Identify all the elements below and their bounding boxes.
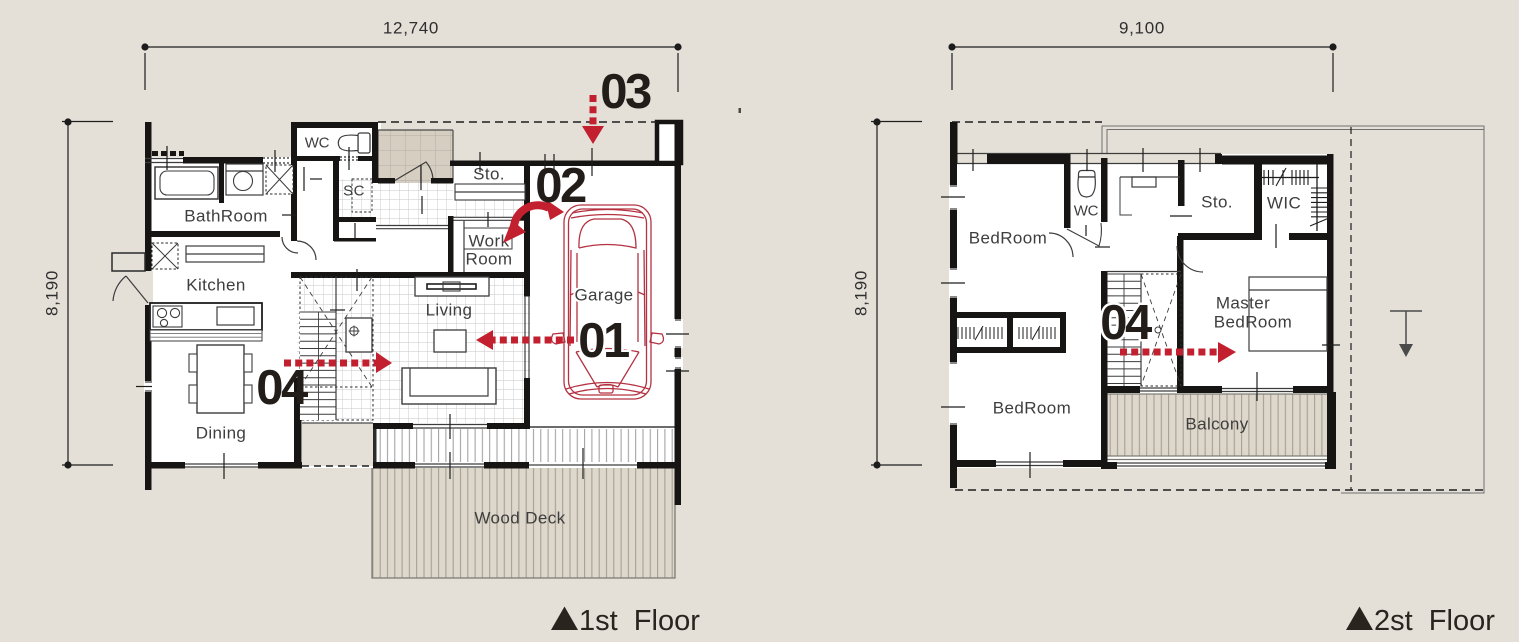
svg-text:Wood Deck: Wood Deck [474, 509, 565, 528]
svg-text:04: 04 [1100, 296, 1152, 350]
svg-text:01: 01 [578, 314, 629, 368]
svg-text:Living: Living [426, 301, 473, 320]
svg-text:Sto.: Sto. [1201, 193, 1233, 212]
svg-text:BedRoom: BedRoom [969, 229, 1047, 248]
svg-text:BedRoom: BedRoom [1214, 313, 1292, 332]
svg-text:Garage: Garage [574, 286, 633, 305]
svg-text:12,740: 12,740 [383, 19, 439, 38]
svg-text:02: 02 [535, 159, 586, 213]
svg-text:03: 03 [600, 65, 651, 119]
svg-text:2st Floor: 2st Floor [1374, 605, 1495, 637]
svg-text:Balcony: Balcony [1185, 415, 1248, 434]
svg-text:BathRoom: BathRoom [184, 207, 268, 226]
svg-text:Work: Work [469, 232, 510, 251]
svg-text:WC: WC [1074, 203, 1099, 220]
svg-text:Sto.: Sto. [473, 165, 505, 184]
svg-text:8,190: 8,190 [852, 270, 871, 316]
svg-text:04: 04 [256, 361, 308, 415]
svg-text:9,100: 9,100 [1119, 19, 1165, 38]
svg-text:SC: SC [343, 183, 365, 200]
svg-text:BedRoom: BedRoom [993, 399, 1071, 418]
svg-text:WC: WC [305, 135, 330, 152]
svg-text:8,190: 8,190 [43, 270, 62, 316]
svg-text:Master: Master [1216, 294, 1270, 313]
svg-text:Kitchen: Kitchen [186, 276, 246, 295]
svg-text:WIC: WIC [1267, 194, 1301, 213]
svg-text:Dining: Dining [196, 424, 247, 443]
svg-text:1st Floor: 1st Floor [579, 605, 700, 637]
svg-text:Room: Room [466, 250, 513, 269]
